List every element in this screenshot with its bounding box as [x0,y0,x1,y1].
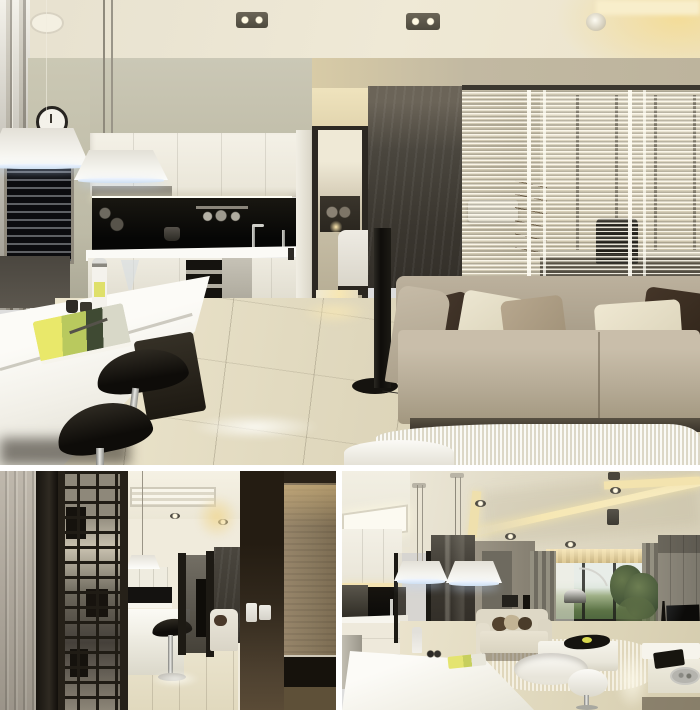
wood-plank-wall [0,471,36,710]
ceiling-vent-icon [608,472,620,480]
cabinet-lower [284,687,336,710]
window-blinds-dark [4,160,74,264]
pendant-wire [46,0,47,120]
bottle [412,627,422,653]
dark-door-panel [240,471,286,710]
light-switch-icon [288,248,294,260]
ceiling-vent-icon [30,12,64,34]
pendant-lamp-rim [0,164,86,169]
view-stool-pole [168,635,173,675]
faucet-icon [390,599,393,616]
sofa-seat [398,330,700,424]
light-switch-icon [246,603,257,622]
round-stool [568,669,608,697]
lattice-frame [120,471,128,710]
bottle-label [94,282,105,297]
floor-reflection [190,414,320,440]
view-island-face [124,635,184,675]
upper-cabinets [342,529,402,591]
sliding-door-frame [178,553,186,655]
view-pillow-brown [214,615,227,626]
dark-edge [36,471,58,710]
partition-frame [394,553,398,643]
pendant-lamp [126,555,160,569]
smoke-detector-icon [586,13,606,31]
hall-floor-reflection [150,671,200,687]
cup [66,300,78,313]
white-stool [344,440,454,465]
cups [426,649,442,658]
ceiling-spot-icon [170,513,180,519]
floor-warm-reflection [300,300,370,324]
shelf-niche [284,657,336,687]
pendant-lamp [394,561,448,581]
desk-monitor [502,595,518,607]
photo-livingroom-wide [342,471,700,710]
clock-hands [50,114,52,123]
wall-kitchen [90,58,312,136]
ceiling-spot-icon [610,487,621,494]
media-wall-shadow [658,535,700,553]
bar-stool-pole [96,448,104,465]
pendant-lamp-rim [78,178,164,183]
seat-seam [598,332,600,420]
pendant-lamp-rim [449,581,499,586]
twin-spotlight-icon [406,13,440,30]
bed [338,230,368,290]
bottle [92,258,107,312]
fork-on-magazine [69,318,108,334]
cups-on-shelf [198,208,246,222]
photo-kitchen-living [0,0,700,465]
chrome-tray [670,667,700,685]
built-in-appliance [342,585,368,619]
pendant-lamp-rim [397,579,445,584]
ceiling-spot-icon [565,541,576,548]
ceiling-spot-icon [505,533,516,540]
hanging-pots-icon [96,202,126,234]
bowl [582,637,592,643]
faucet-spout [252,224,264,227]
partition-top-rail [462,85,700,90]
photo-hallway-screen [0,471,336,710]
pendant-mount [450,473,464,478]
twin-spotlight-icon [236,12,268,28]
lattice-frame [58,471,65,710]
arc-lamp-shade [564,589,586,603]
photo-collage [0,0,700,710]
thermostat-panel-icon [259,605,271,620]
pendant-mount [412,483,426,488]
stool-base [576,705,598,710]
lattice-grid [58,471,128,710]
view-counter [126,603,172,608]
view-speaker [196,579,206,637]
pendant-lamp [446,561,502,583]
ceiling-spot-icon [475,500,486,507]
pendant-wire [142,471,143,557]
pendant-lamp [74,150,168,180]
view-cabinets [126,567,168,589]
ceiling-vent-icon [607,509,619,525]
kettle-icon [164,227,180,241]
floor-shadow [642,697,700,710]
cove-glow [196,495,238,539]
wood-cabinet-top [284,471,336,483]
cove-light-band [596,0,700,15]
pendant-wire [12,0,13,140]
wood-cabinet-glow [284,485,336,527]
